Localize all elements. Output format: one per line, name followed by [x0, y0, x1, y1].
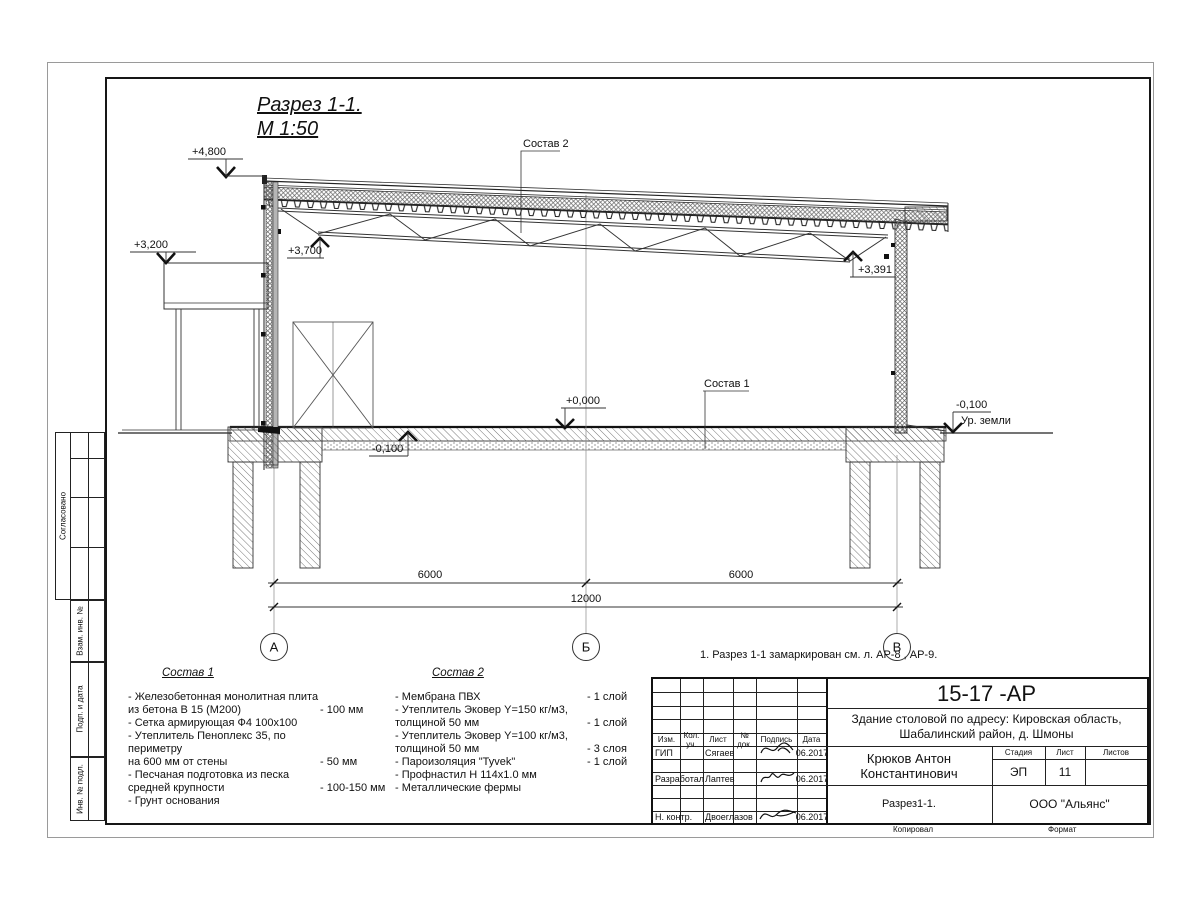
row-name: Сягаев — [705, 746, 755, 759]
eaves-beam — [905, 207, 947, 221]
list-item: - Железобетонная монолитная плита из бет… — [128, 691, 388, 717]
entrance-canopy — [164, 263, 268, 430]
door-opening — [293, 322, 373, 428]
sostav1-ref-label: Состав 1 — [704, 378, 750, 390]
ground-level-label: Ур. земли — [961, 415, 1011, 427]
list-item: - Мембрана ПВХ- 1 слой — [395, 691, 630, 704]
wall-left — [258, 175, 280, 470]
drawing-sheet: Разрез 1-1. М 1:50 +4,800 +3,200 +3,700 … — [0, 0, 1200, 900]
col-data: Дата — [797, 733, 826, 746]
sheet-number: 11 — [1045, 759, 1085, 785]
project-name: Здание столовой по адресу: Кировская обл… — [826, 708, 1147, 746]
format-label: Формат — [1048, 825, 1076, 834]
axis-lines — [274, 195, 897, 633]
axis-mark-b: Б — [582, 640, 591, 655]
elevation-minus0100-left: -0,100 — [372, 443, 403, 455]
signature-icon — [758, 803, 798, 825]
dim-total: 12000 — [571, 593, 602, 605]
sostav1-list: - Железобетонная монолитная плита из бет… — [128, 691, 388, 808]
section-scale: М 1:50 — [257, 118, 318, 140]
col-list: Лист — [703, 733, 733, 746]
dim-span2: 6000 — [729, 569, 753, 581]
podp-label: Подп. и дата — [76, 685, 85, 732]
list-item: - Сетка армирующая Ф4 100х100 — [128, 717, 388, 730]
list-item: - Металлические фермы — [395, 782, 630, 795]
stage-label: Стадия — [992, 746, 1045, 759]
list-item: - Пароизоляция "Tyvek"- 1 слой — [395, 756, 630, 769]
drawing-note: 1. Разрез 1-1 замаркирован см. л. АР-8 ,… — [700, 649, 937, 661]
floor-slab — [230, 427, 946, 450]
title-block: Изм. Кол. уч. Лист № док. Подпись Дата Г… — [651, 677, 1149, 825]
row-role: ГИП — [655, 746, 701, 759]
col-koluch: Кол. уч. — [680, 733, 703, 746]
list-item: - Песчаная подготовка из песка средней к… — [128, 769, 388, 795]
row-date: 06.2017 — [798, 772, 826, 785]
row-date: 06.2017 — [798, 746, 826, 759]
col-dok: № док. — [733, 733, 756, 746]
section-title: Разрез 1-1. М 1:50 — [257, 93, 362, 141]
signature-icon — [758, 739, 796, 759]
foundation-right — [846, 427, 944, 568]
elevation-4800: +4,800 — [192, 146, 226, 158]
inv-label: Инв. № подл. — [76, 764, 85, 814]
list-item: - Утеплитель Эковер Y=100 кг/м3, толщино… — [395, 730, 630, 756]
list-item: - Утеплитель Пеноплекс 35, по периметру … — [128, 730, 388, 769]
col-izm: Изм. — [653, 733, 680, 746]
roof-package — [264, 178, 948, 232]
agreed-label: Согласовано — [59, 492, 68, 540]
vzam-label: Взам. инв. № — [76, 606, 85, 656]
list-item: - Профнастил Н 114х1.0 мм — [395, 769, 630, 782]
doc-number: 15-17 -АР — [826, 679, 1147, 708]
sostav2-title: Состав 2 — [432, 667, 484, 679]
sostav2-ref-label: Состав 2 — [523, 138, 569, 150]
section-title-line1: Разрез 1-1. — [257, 94, 362, 116]
list-item: - Утеплитель Эковер Y=150 кг/м3, толщино… — [395, 704, 630, 730]
row-date: 06.2017 — [798, 810, 826, 823]
sheets-label: Листов — [1085, 746, 1147, 759]
elevation-3700: +3,700 — [288, 245, 322, 257]
row-name: Лаптев — [705, 772, 755, 785]
elevation-3391: +3,391 — [858, 264, 892, 276]
axis-mark-a: А — [270, 640, 279, 655]
sostav2-list: - Мембрана ПВХ- 1 слой - Утеплитель Эков… — [395, 691, 630, 795]
sheet-label: Лист — [1045, 746, 1085, 759]
elevation-0000: +0,000 — [566, 395, 600, 407]
elevation-3200: +3,200 — [134, 239, 168, 251]
company-name: ООО "Альянс" — [992, 785, 1147, 823]
sostav1-title: Состав 1 — [162, 667, 214, 679]
author-name: Крюков Антон Константинович — [826, 746, 992, 785]
signature-icon — [758, 767, 796, 787]
row-name: Двоеглазов — [705, 810, 760, 823]
row-role: Н. контр. — [655, 810, 703, 823]
copied-label: Копировал — [893, 825, 933, 834]
dim-span1: 6000 — [418, 569, 442, 581]
list-item: - Грунт основания — [128, 795, 388, 808]
elevation-minus0100-right: -0,100 — [956, 399, 987, 411]
wall-right — [891, 219, 907, 433]
truss-support-right — [884, 254, 889, 259]
row-role: Разработал — [655, 772, 703, 785]
sheet-title: Разрез1-1. — [826, 785, 992, 823]
stage-value: ЭП — [992, 759, 1045, 785]
